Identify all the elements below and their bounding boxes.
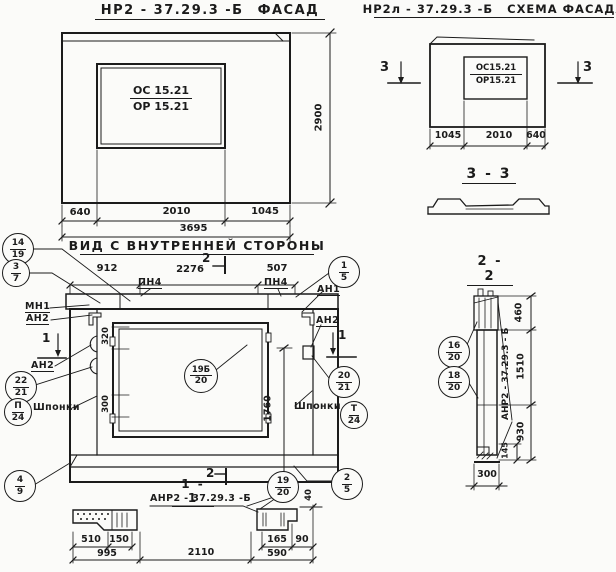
s11-dim-40: 40 (304, 485, 314, 505)
callout-16-20-top: 16 (446, 342, 463, 353)
scheme-section-mark-right: 3 (583, 60, 592, 75)
facade-dim-total: 3695 (171, 223, 216, 234)
callout-18-20-bottom: 20 (448, 383, 461, 393)
iv-dim-2276: 2276 (168, 264, 212, 275)
section-2-2-title: 2 - 2 (467, 254, 513, 286)
iv-label-an2-a: АН2 (26, 313, 49, 325)
facade-window-mark-top: ОС 15.21 (130, 84, 192, 99)
callout-20-21-bottom: 21 (338, 383, 351, 393)
callout-16-20-bottom: 20 (448, 353, 461, 363)
facade-dim-mid: 2010 (154, 206, 199, 217)
iv-dim-1760: 1760 (263, 393, 274, 425)
callout-19-20-top: 19 (275, 477, 292, 488)
facade-window-mark: ОС 15.21 ОР 15.21 (130, 84, 192, 113)
callout-2-5-top: 2 (342, 474, 352, 485)
callout-20-21-top: 20 (336, 372, 353, 383)
iv-label-an2-c: АН2 (316, 315, 339, 327)
scheme-dim-right: 640 (521, 130, 551, 141)
callout-16-20: 16 20 (438, 336, 470, 368)
facade-dim-right: 1045 (243, 206, 287, 217)
iv-label-pn4-a: ПН4 (138, 277, 162, 289)
callout-4-9: 4 9 (4, 470, 36, 502)
inner-view-title: ВИД С ВНУТРЕННЕЙ СТОРОНЫ (80, 238, 314, 255)
callout-2-5-bottom: 5 (344, 485, 350, 495)
scheme-window-mark-bottom: ОР15.21 (470, 75, 522, 86)
callout-p-24-bottom: 24 (12, 413, 25, 423)
scheme-window-mark-top: ОС15.21 (470, 63, 522, 75)
s11-dim-590: 590 (263, 548, 291, 559)
s22-dim-460: 460 (514, 298, 525, 328)
callout-18-20-top: 18 (446, 372, 463, 383)
s11-dim-510: 510 (76, 534, 106, 545)
callout-t-24-bottom: 24 (348, 416, 361, 426)
iv-dim-912: 912 (88, 263, 126, 274)
drawing-sheet: НР2 - 37.29.3 -Б ФАСАД НР2л - 37.29.3 -Б… (0, 0, 616, 572)
facade-window-mark-bottom: ОР 15.21 (130, 99, 192, 113)
s22-dim-930: 930 (516, 417, 527, 447)
iv-dim-300: 300 (101, 391, 111, 417)
callout-1-5: 1 5 (328, 256, 360, 288)
callout-20-21: 20 21 (328, 366, 360, 398)
callout-14-19-bottom: 19 (12, 250, 25, 260)
callout-t-24-top: Т (349, 405, 359, 416)
scheme-title-number: НР2л - 37.29.3 -Б (363, 2, 494, 16)
scheme-dim-mid: 2010 (480, 130, 518, 141)
facade-title-number: НР2 - 37.29.3 -Б (101, 3, 244, 18)
callout-t-24: Т 24 (340, 401, 368, 429)
callout-4-9-bottom: 9 (17, 487, 23, 497)
s11-dim-150: 150 (106, 534, 132, 545)
facade-title: НР2 - 37.29.3 -Б ФАСАД (95, 3, 325, 20)
iv-section-mark-2-top: 2 (202, 251, 210, 265)
s22-dim-1510: 1510 (516, 350, 527, 384)
callout-19-20-bottom: 20 (277, 488, 290, 498)
s22-dim-300: 300 (474, 469, 500, 480)
callout-14-19-top: 14 (10, 239, 27, 250)
s22-dim-145: 145 (501, 440, 510, 462)
callout-19b-20-top: 19Б (190, 366, 212, 377)
iv-section-mark-1-right: 1 (338, 328, 346, 342)
s11-dim-2110: 2110 (184, 547, 218, 558)
s22-panel-label: АНР2 - 37.29.3 - Б (501, 328, 511, 420)
callout-4-9-top: 4 (15, 476, 25, 487)
facade-dim-left: 640 (61, 207, 99, 218)
iv-label-pn4-b: ПН4 (264, 277, 288, 289)
callout-3-7-bottom: 7 (13, 274, 19, 284)
section-1-1-label: АНР2 - 37.29.3 -Б (150, 493, 251, 504)
s11-dim-165: 165 (264, 534, 290, 545)
callout-22-21-top: 22 (13, 377, 30, 388)
scheme-section-mark-left: 3 (380, 60, 389, 75)
iv-section-mark-2-bottom: 2 (206, 466, 214, 480)
facade-dim-height: 2900 (314, 103, 325, 133)
callout-19b-20-bottom: 20 (195, 376, 208, 386)
callout-p-24: П 24 (4, 398, 32, 426)
callout-1-5-top: 1 (339, 262, 349, 273)
callout-18-20: 18 20 (438, 366, 470, 398)
scheme-window-mark: ОС15.21 ОР15.21 (470, 63, 522, 86)
scheme-title: НР2л - 37.29.3 -Б СХЕМА ФАСАДА (374, 2, 614, 18)
callout-19b-20: 19Б 20 (184, 359, 218, 393)
callout-3-7: 3 7 (2, 259, 30, 287)
iv-section-mark-1-left: 1 (42, 331, 50, 345)
iv-dim-320: 320 (101, 323, 111, 349)
s11-dim-995: 995 (92, 548, 122, 559)
callout-1-5-bottom: 5 (341, 273, 347, 283)
iv-label-shponki-right: Шпонки (294, 401, 341, 412)
callout-3-7-top: 3 (11, 263, 21, 274)
scheme-dim-left: 1045 (430, 130, 466, 141)
iv-label-shponki-left: Шпонки (33, 402, 80, 413)
s11-dim-90: 90 (291, 534, 313, 545)
iv-label-an2-b: АН2 (31, 360, 54, 372)
callout-22-21-bottom: 21 (15, 388, 28, 398)
section-3-3-title: 3 - 3 (462, 166, 516, 184)
iv-dim-507: 507 (258, 263, 296, 274)
inner-view-title-text: ВИД С ВНУТРЕННЕЙ СТОРОНЫ (69, 238, 326, 253)
iv-label-mn1: МН1 (25, 301, 50, 313)
facade-title-word: ФАСАД (258, 3, 320, 18)
section-3-3-profile (428, 199, 549, 214)
callout-p-24-top: П (12, 402, 24, 413)
scheme-title-word: СХЕМА ФАСАДА (507, 2, 616, 16)
callout-19-20: 19 20 (267, 471, 299, 503)
callout-2-5: 2 5 (331, 468, 363, 500)
